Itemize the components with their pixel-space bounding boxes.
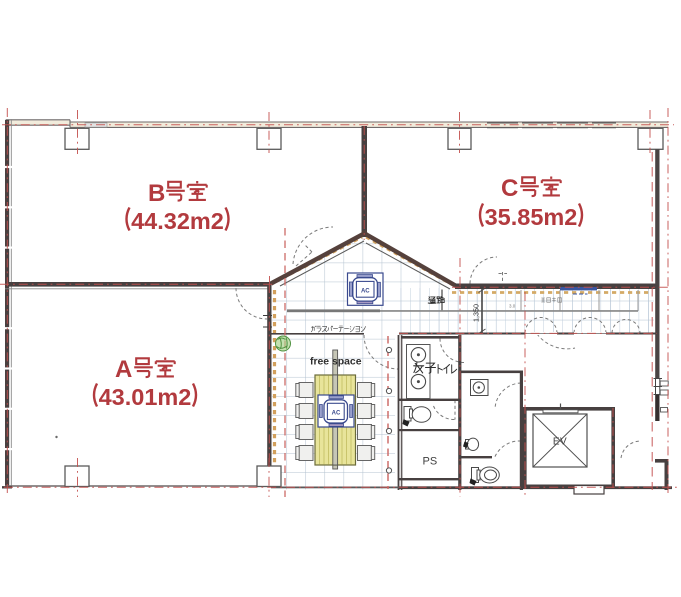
svg-text:A: A <box>115 356 132 383</box>
svg-text:AC: AC <box>361 289 370 295</box>
svg-text:3.0: 3.0 <box>509 304 516 309</box>
svg-text:C: C <box>501 175 518 202</box>
svg-text:1,350: 1,350 <box>472 304 481 322</box>
svg-text:44.32m2: 44.32m2 <box>131 208 224 234</box>
svg-text:PS: PS <box>423 456 438 468</box>
svg-text:free space: free space <box>310 356 362 368</box>
svg-text:B: B <box>148 180 165 207</box>
svg-text:EV: EV <box>553 437 567 448</box>
svg-text:35.85m2: 35.85m2 <box>485 204 578 230</box>
svg-text:43.01m2: 43.01m2 <box>99 384 192 410</box>
svg-text:AC: AC <box>332 411 341 417</box>
